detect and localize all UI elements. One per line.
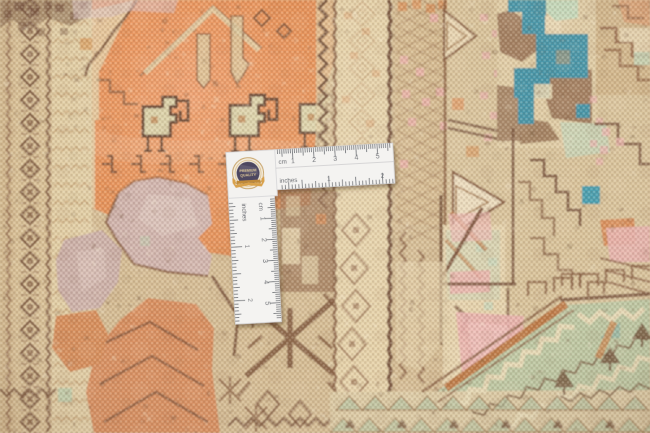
svg-text:4: 4 <box>354 155 358 162</box>
svg-text:cm: cm <box>278 159 287 166</box>
svg-text:1: 1 <box>291 158 295 165</box>
svg-text:5: 5 <box>376 153 380 160</box>
svg-text:2: 2 <box>260 238 267 242</box>
svg-text:5: 5 <box>263 301 270 305</box>
svg-text:inches: inches <box>240 203 248 221</box>
svg-text:1: 1 <box>259 217 266 221</box>
svg-text:cm: cm <box>257 202 264 211</box>
svg-text:2: 2 <box>312 157 316 164</box>
svg-text:4: 4 <box>262 280 269 284</box>
svg-text:inches: inches <box>279 177 297 185</box>
svg-text:3: 3 <box>333 156 337 163</box>
svg-text:3: 3 <box>261 259 268 263</box>
